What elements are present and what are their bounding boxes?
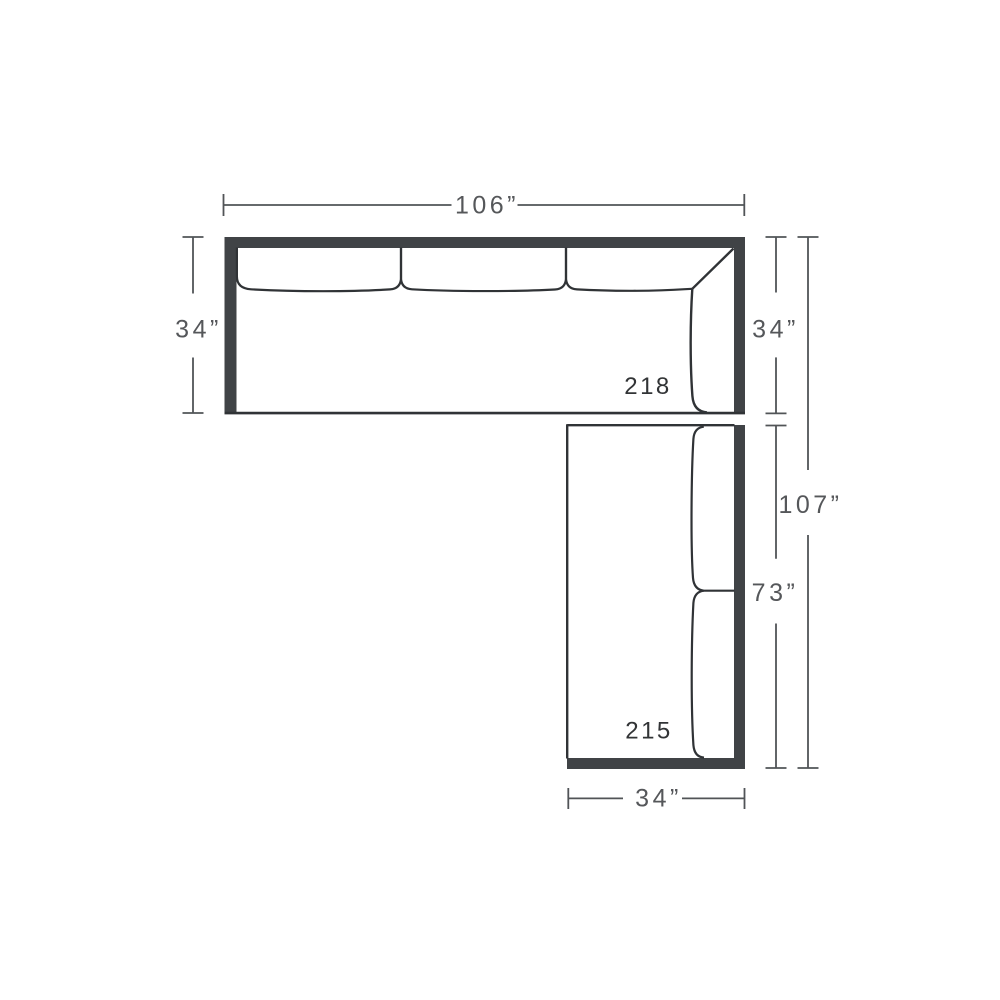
svg-text:106”: 106”	[455, 192, 519, 220]
svg-text:73”: 73”	[752, 579, 799, 607]
svg-text:215: 215	[625, 718, 673, 745]
svg-text:34”: 34”	[635, 785, 682, 813]
svg-text:218: 218	[624, 373, 672, 400]
svg-text:34”: 34”	[752, 316, 799, 344]
svg-text:34”: 34”	[175, 316, 222, 344]
svg-text:107”: 107”	[778, 491, 842, 519]
